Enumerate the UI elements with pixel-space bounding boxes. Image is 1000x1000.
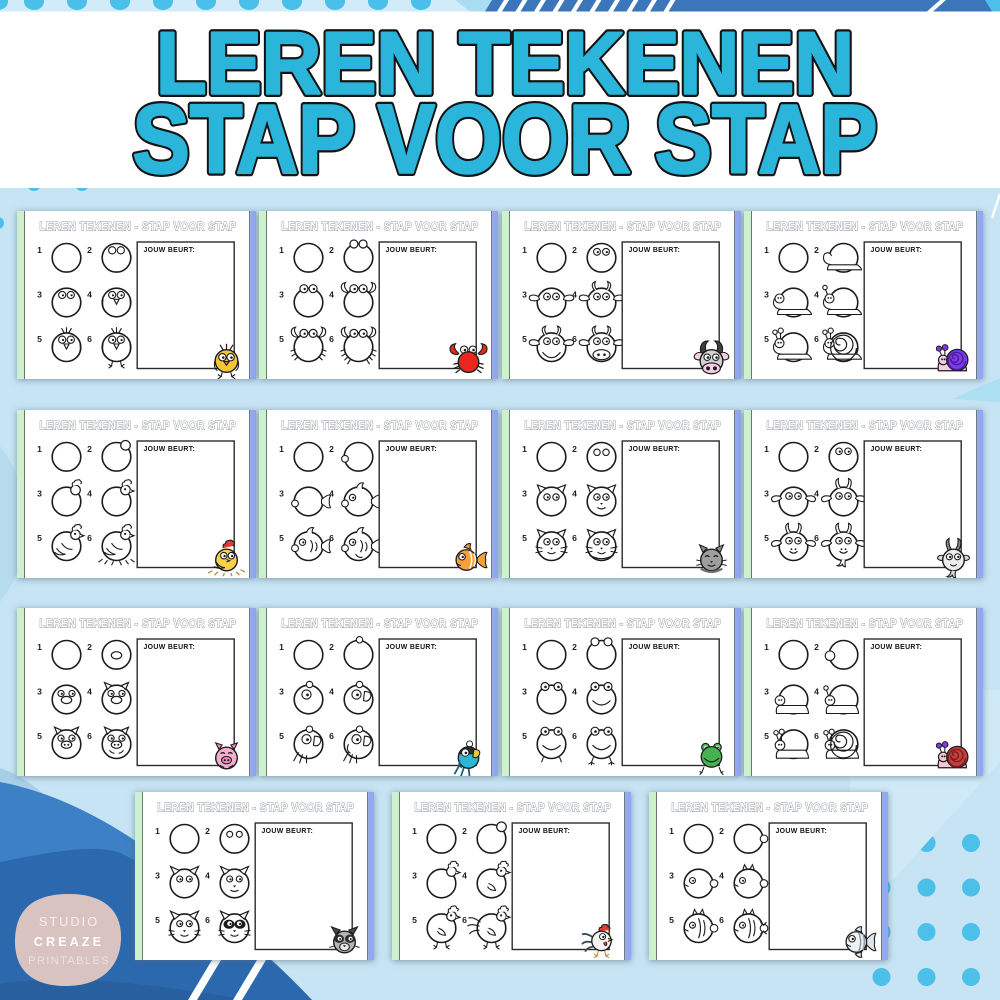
- svg-text:LEREN TEKENEN - STAP VOOR STAP: LEREN TEKENEN - STAP VOOR STAP: [524, 220, 721, 233]
- svg-text:2: 2: [329, 245, 334, 255]
- svg-text:5: 5: [279, 731, 284, 741]
- svg-text:JOUW BEURT:: JOUW BEURT:: [386, 446, 438, 453]
- svg-text:LEREN TEKENEN - STAP VOOR STAP: LEREN TEKENEN - STAP VOOR STAP: [282, 420, 479, 433]
- svg-text:3: 3: [279, 289, 284, 299]
- svg-text:2: 2: [87, 444, 92, 454]
- svg-text:3: 3: [279, 686, 284, 696]
- svg-text:2: 2: [329, 444, 334, 454]
- svg-text:4: 4: [719, 870, 724, 880]
- svg-text:LEREN TEKENEN - STAP VOOR STAP: LEREN TEKENEN - STAP VOOR STAP: [766, 220, 963, 233]
- svg-text:LEREN TEKENEN - STAP VOOR STAP: LEREN TEKENEN - STAP VOOR STAP: [40, 617, 237, 630]
- svg-text:6: 6: [329, 533, 334, 543]
- svg-text:4: 4: [572, 489, 577, 499]
- svg-text:1: 1: [764, 444, 769, 454]
- svg-text:2: 2: [87, 245, 92, 255]
- svg-text:5: 5: [764, 731, 769, 741]
- svg-text:STUDIO: STUDIO: [39, 914, 99, 929]
- svg-text:JOUW BEURT:: JOUW BEURT:: [776, 828, 828, 835]
- svg-text:4: 4: [87, 489, 92, 499]
- svg-text:6: 6: [814, 334, 819, 344]
- svg-text:4: 4: [205, 870, 210, 880]
- svg-text:JOUW BEURT:: JOUW BEURT:: [628, 247, 680, 254]
- svg-text:LEREN TEKENEN - STAP VOOR STAP: LEREN TEKENEN - STAP VOOR STAP: [40, 420, 237, 433]
- svg-text:JOUW BEURT:: JOUW BEURT:: [386, 644, 438, 651]
- svg-text:1: 1: [764, 245, 769, 255]
- svg-text:2: 2: [814, 245, 819, 255]
- svg-text:LEREN TEKENEN - STAP VOOR STAP: LEREN TEKENEN - STAP VOOR STAP: [672, 801, 869, 814]
- svg-text:6: 6: [205, 915, 210, 925]
- svg-text:JOUW BEURT:: JOUW BEURT:: [628, 644, 680, 651]
- svg-text:4: 4: [87, 686, 92, 696]
- svg-text:LEREN TEKENEN - STAP VOOR STAP: LEREN TEKENEN - STAP VOOR STAP: [158, 801, 355, 814]
- svg-text:LEREN TEKENEN - STAP VOOR STAP: LEREN TEKENEN - STAP VOOR STAP: [524, 617, 721, 630]
- svg-text:5: 5: [37, 334, 42, 344]
- svg-text:5: 5: [412, 915, 417, 925]
- svg-text:2: 2: [572, 642, 577, 652]
- svg-text:3: 3: [764, 289, 769, 299]
- svg-text:3: 3: [522, 686, 527, 696]
- svg-text:2: 2: [462, 826, 467, 836]
- svg-text:JOUW BEURT:: JOUW BEURT:: [144, 247, 196, 254]
- svg-text:6: 6: [87, 334, 92, 344]
- svg-text:3: 3: [522, 489, 527, 499]
- svg-text:4: 4: [572, 686, 577, 696]
- svg-text:2: 2: [719, 826, 724, 836]
- svg-text:5: 5: [669, 915, 674, 925]
- svg-text:3: 3: [37, 686, 42, 696]
- svg-text:1: 1: [155, 826, 160, 836]
- svg-text:4: 4: [329, 489, 334, 499]
- svg-text:3: 3: [522, 289, 527, 299]
- svg-text:6: 6: [719, 915, 724, 925]
- svg-text:JOUW BEURT:: JOUW BEURT:: [144, 446, 196, 453]
- svg-text:JOUW BEURT:: JOUW BEURT:: [386, 247, 438, 254]
- svg-text:1: 1: [279, 444, 284, 454]
- svg-text:3: 3: [37, 289, 42, 299]
- svg-text:LEREN TEKENEN - STAP VOOR STAP: LEREN TEKENEN - STAP VOOR STAP: [282, 220, 479, 233]
- svg-text:3: 3: [669, 870, 674, 880]
- svg-text:CREAZE: CREAZE: [34, 935, 104, 949]
- svg-text:LEREN TEKENEN - STAP VOOR STAP: LEREN TEKENEN - STAP VOOR STAP: [415, 801, 612, 814]
- svg-text:1: 1: [279, 642, 284, 652]
- svg-text:6: 6: [87, 731, 92, 741]
- svg-text:1: 1: [279, 245, 284, 255]
- svg-text:3: 3: [412, 870, 417, 880]
- svg-text:JOUW BEURT:: JOUW BEURT:: [870, 247, 922, 254]
- svg-text:STAP VOOR STAP: STAP VOOR STAP: [133, 85, 878, 194]
- svg-text:1: 1: [522, 642, 527, 652]
- svg-text:1: 1: [522, 444, 527, 454]
- svg-text:2: 2: [814, 444, 819, 454]
- svg-text:LEREN TEKENEN - STAP VOOR STAP: LEREN TEKENEN - STAP VOOR STAP: [524, 420, 721, 433]
- svg-text:5: 5: [37, 533, 42, 543]
- svg-text:2: 2: [814, 642, 819, 652]
- svg-text:5: 5: [155, 915, 160, 925]
- svg-text:4: 4: [572, 289, 577, 299]
- svg-text:4: 4: [329, 289, 334, 299]
- svg-text:5: 5: [522, 533, 527, 543]
- svg-text:4: 4: [814, 489, 819, 499]
- svg-text:LEREN TEKENEN - STAP VOOR STAP: LEREN TEKENEN - STAP VOOR STAP: [282, 617, 479, 630]
- svg-text:6: 6: [572, 334, 577, 344]
- svg-text:5: 5: [764, 334, 769, 344]
- svg-text:2: 2: [572, 444, 577, 454]
- svg-text:PRINTABLES: PRINTABLES: [28, 955, 110, 967]
- svg-text:6: 6: [87, 533, 92, 543]
- svg-text:5: 5: [37, 731, 42, 741]
- svg-text:3: 3: [279, 489, 284, 499]
- svg-text:6: 6: [814, 731, 819, 741]
- svg-text:1: 1: [669, 826, 674, 836]
- svg-text:1: 1: [412, 826, 417, 836]
- svg-text:6: 6: [329, 731, 334, 741]
- svg-text:3: 3: [37, 489, 42, 499]
- svg-text:3: 3: [155, 870, 160, 880]
- svg-text:2: 2: [87, 642, 92, 652]
- svg-text:3: 3: [764, 686, 769, 696]
- svg-text:JOUW BEURT:: JOUW BEURT:: [144, 644, 196, 651]
- svg-text:2: 2: [572, 245, 577, 255]
- svg-text:JOUW BEURT:: JOUW BEURT:: [628, 446, 680, 453]
- svg-text:1: 1: [764, 642, 769, 652]
- svg-text:6: 6: [462, 915, 467, 925]
- svg-text:6: 6: [329, 334, 334, 344]
- svg-text:4: 4: [462, 870, 467, 880]
- svg-text:2: 2: [205, 826, 210, 836]
- svg-text:6: 6: [572, 533, 577, 543]
- svg-text:LEREN TEKENEN - STAP VOOR STAP: LEREN TEKENEN - STAP VOOR STAP: [766, 420, 963, 433]
- svg-text:6: 6: [572, 731, 577, 741]
- svg-text:4: 4: [814, 686, 819, 696]
- svg-text:6: 6: [814, 533, 819, 543]
- svg-text:JOUW BEURT:: JOUW BEURT:: [870, 446, 922, 453]
- svg-text:JOUW BEURT:: JOUW BEURT:: [870, 644, 922, 651]
- svg-text:4: 4: [87, 289, 92, 299]
- svg-text:1: 1: [522, 245, 527, 255]
- svg-text:JOUW BEURT:: JOUW BEURT:: [262, 828, 314, 835]
- svg-text:JOUW BEURT:: JOUW BEURT:: [519, 828, 571, 835]
- svg-text:5: 5: [279, 334, 284, 344]
- svg-text:5: 5: [522, 731, 527, 741]
- svg-text:1: 1: [37, 245, 42, 255]
- svg-text:4: 4: [814, 289, 819, 299]
- svg-text:2: 2: [329, 642, 334, 652]
- svg-text:LEREN TEKENEN - STAP VOOR STAP: LEREN TEKENEN - STAP VOOR STAP: [766, 617, 963, 630]
- svg-text:1: 1: [37, 444, 42, 454]
- svg-text:3: 3: [764, 489, 769, 499]
- svg-text:1: 1: [37, 642, 42, 652]
- svg-text:5: 5: [522, 334, 527, 344]
- svg-text:5: 5: [279, 533, 284, 543]
- svg-text:LEREN TEKENEN - STAP VOOR STAP: LEREN TEKENEN - STAP VOOR STAP: [40, 220, 237, 233]
- svg-text:4: 4: [329, 686, 334, 696]
- svg-text:5: 5: [764, 533, 769, 543]
